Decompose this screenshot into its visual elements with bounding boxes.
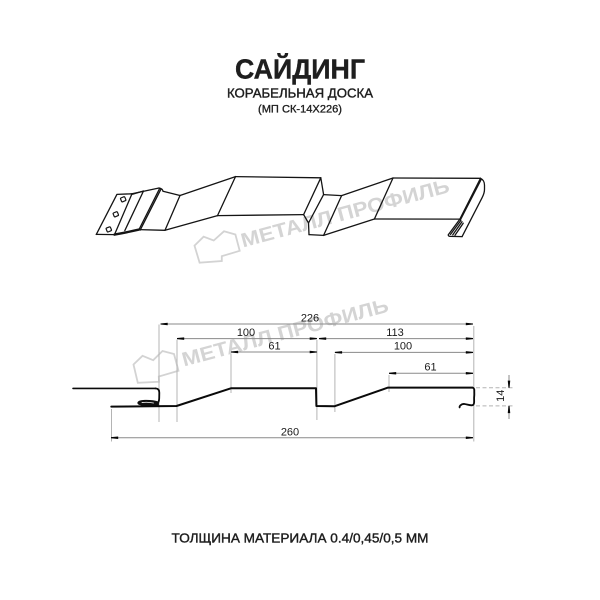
svg-text:ТОЛЩИНА МАТЕРИАЛА 0.4/0,45/0,5: ТОЛЩИНА МАТЕРИАЛА 0.4/0,45/0,5 ММ — [172, 530, 429, 545]
svg-text:14: 14 — [495, 390, 507, 402]
svg-text:МЕТАЛЛ ПРОФИЛЬ: МЕТАЛЛ ПРОФИЛЬ — [180, 295, 391, 371]
svg-text:61: 61 — [424, 362, 436, 374]
svg-text:260: 260 — [281, 427, 299, 439]
svg-text:100: 100 — [394, 341, 412, 353]
svg-text:113: 113 — [386, 327, 404, 339]
svg-text:226: 226 — [301, 312, 319, 324]
svg-text:(МП СК-14Х226): (МП СК-14Х226) — [258, 103, 342, 115]
svg-text:МЕТАЛЛ ПРОФИЛЬ: МЕТАЛЛ ПРОФИЛЬ — [239, 175, 452, 252]
svg-text:САЙДИНГ: САЙДИНГ — [235, 53, 365, 85]
svg-text:61: 61 — [268, 340, 280, 352]
svg-text:КОРАБЕЛЬНАЯ ДОСКА: КОРАБЕЛЬНАЯ ДОСКА — [227, 87, 374, 101]
svg-text:100: 100 — [237, 327, 255, 339]
